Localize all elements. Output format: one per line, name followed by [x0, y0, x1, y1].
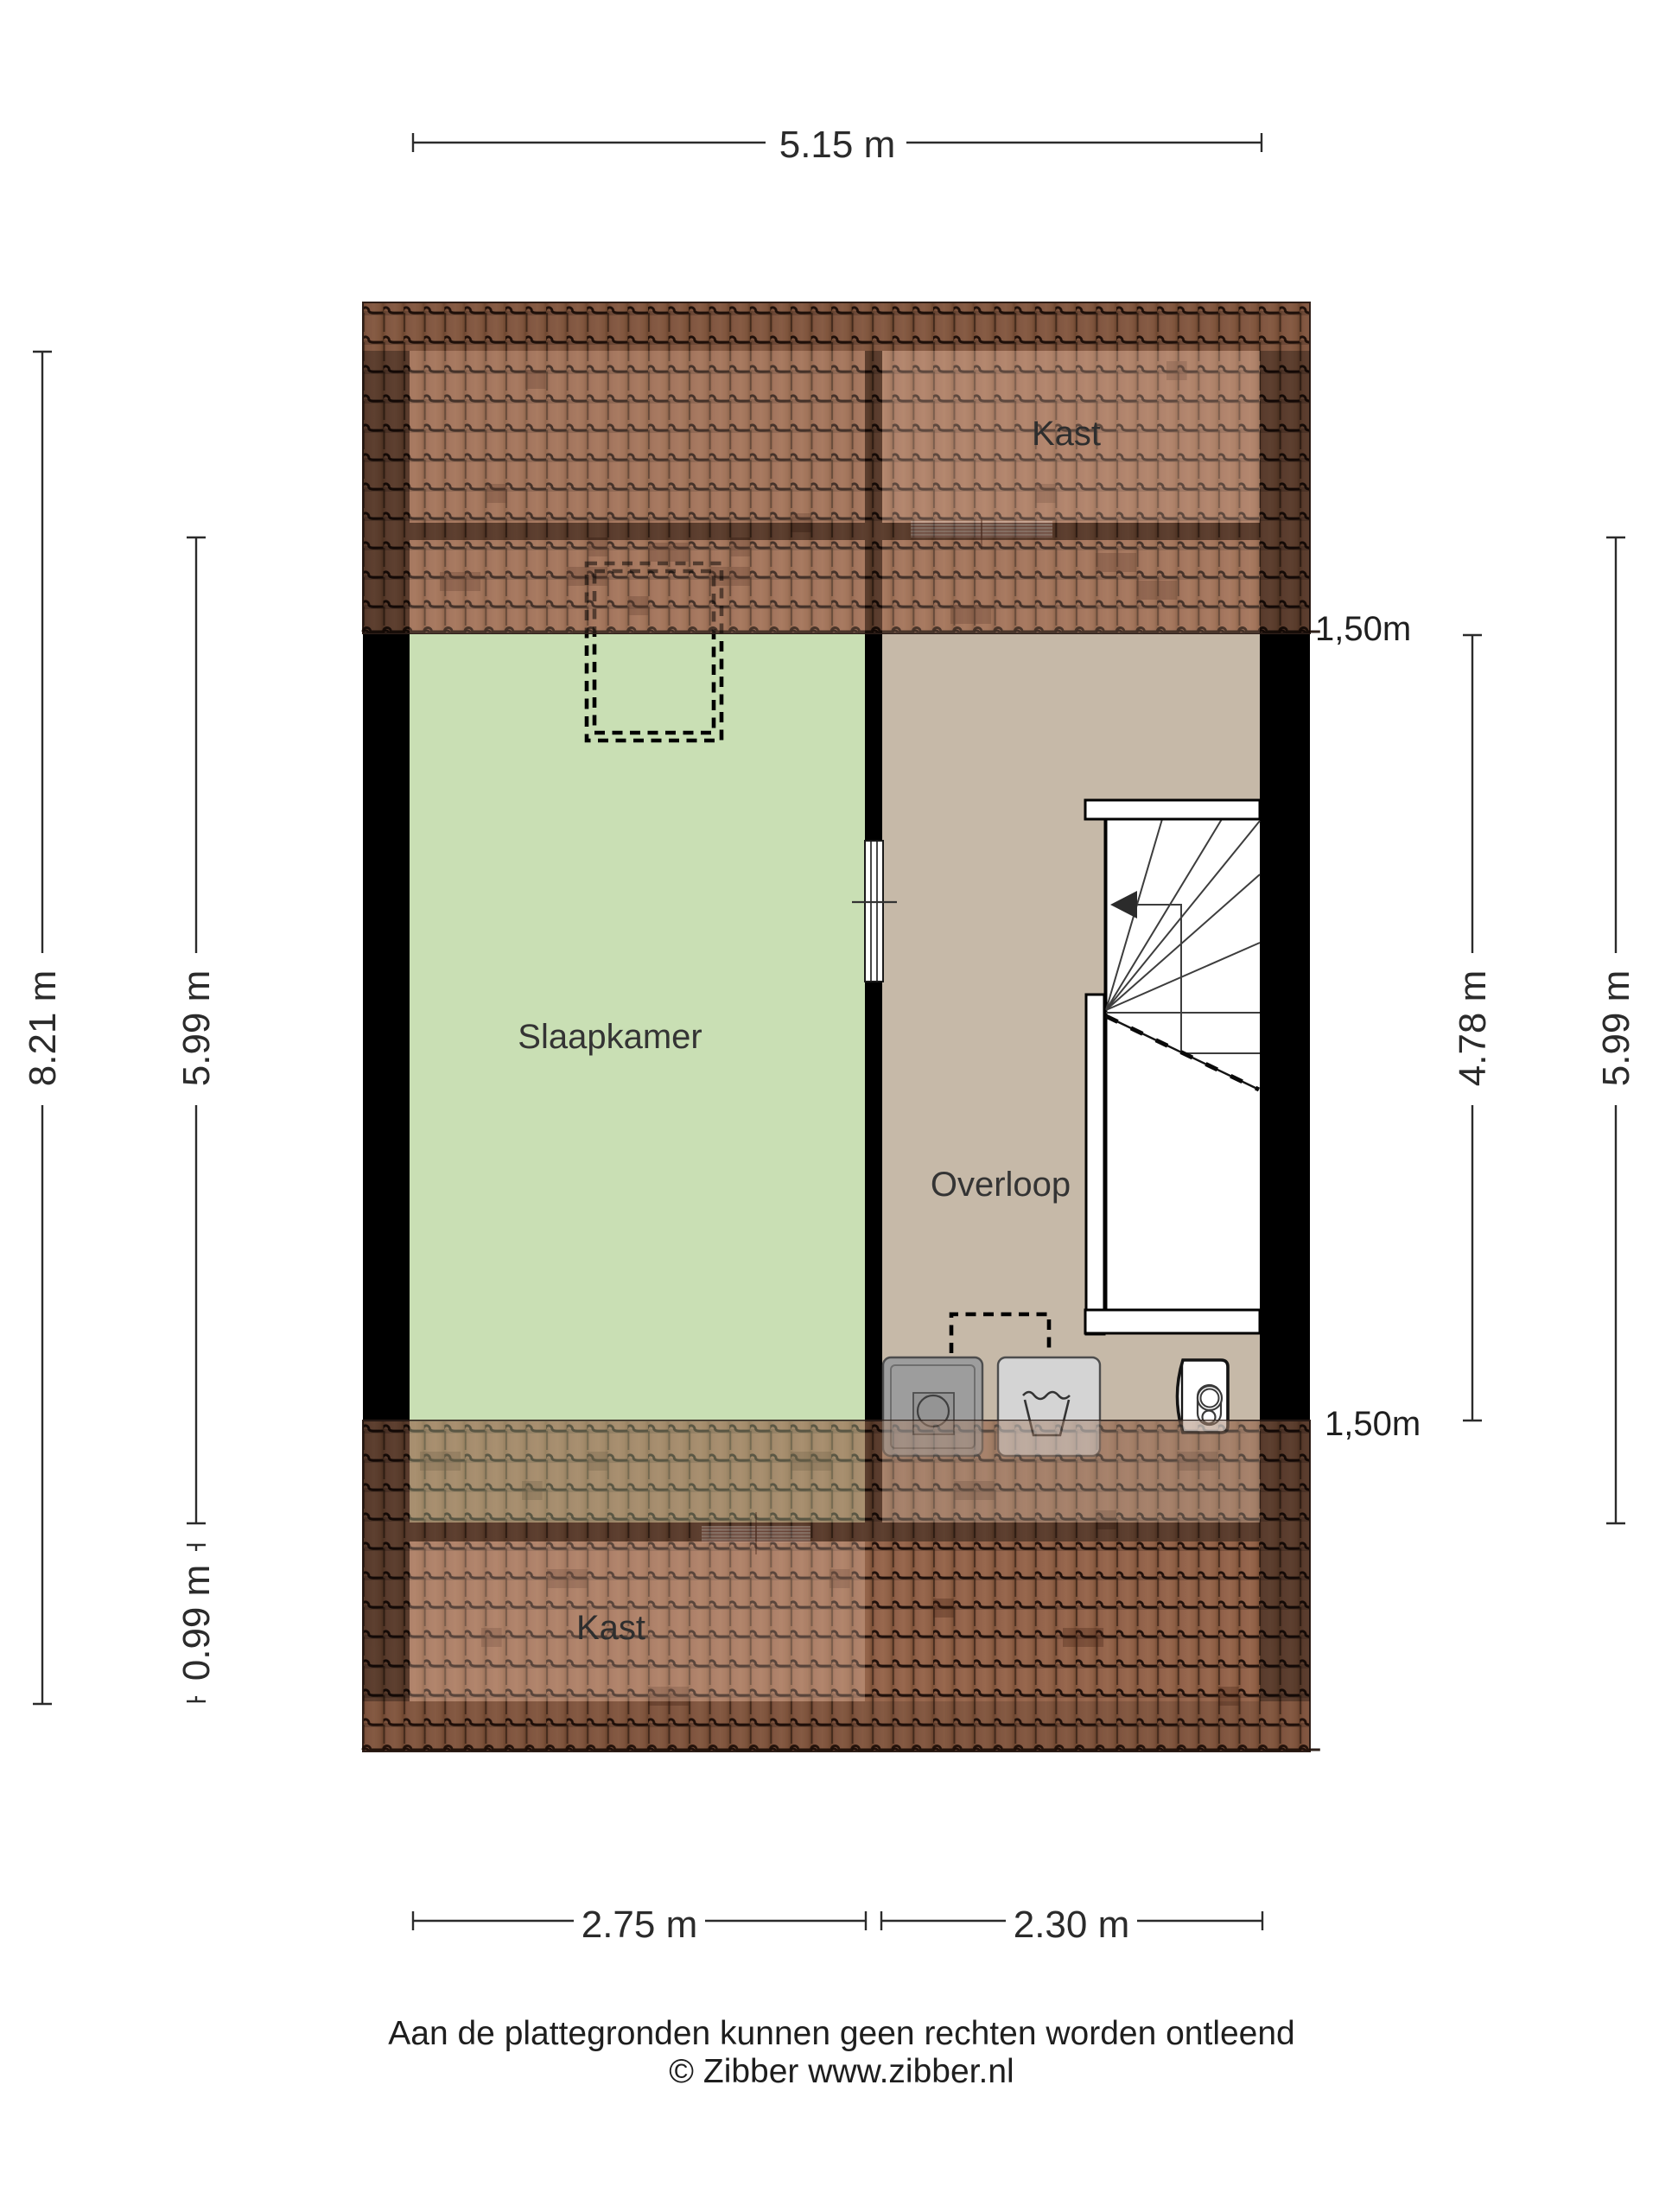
svg-text:4.78 m: 4.78 m — [1452, 970, 1494, 1087]
svg-text:Overloop: Overloop — [931, 1166, 1071, 1204]
svg-text:© Zibber www.zibber.nl: © Zibber www.zibber.nl — [669, 2053, 1014, 2090]
svg-text:2.30 m: 2.30 m — [1014, 1904, 1130, 1946]
svg-text:5.99 m: 5.99 m — [1595, 970, 1637, 1087]
svg-text:0.99 m: 0.99 m — [175, 1565, 218, 1681]
svg-text:5.15 m: 5.15 m — [779, 124, 896, 166]
svg-text:1,50m: 1,50m — [1315, 610, 1411, 648]
svg-text:Aan de plattegronden kunnen ge: Aan de plattegronden kunnen geen rechten… — [388, 2015, 1295, 2052]
svg-text:5.99 m: 5.99 m — [175, 970, 218, 1087]
svg-text:2.75 m: 2.75 m — [582, 1904, 698, 1946]
svg-text:Kast: Kast — [576, 1609, 645, 1647]
svg-text:Kast: Kast — [1032, 415, 1101, 453]
svg-text:1,50m: 1,50m — [1325, 1405, 1421, 1443]
svg-text:Slaapkamer: Slaapkamer — [518, 1018, 702, 1056]
svg-text:8.21 m: 8.21 m — [22, 970, 64, 1087]
